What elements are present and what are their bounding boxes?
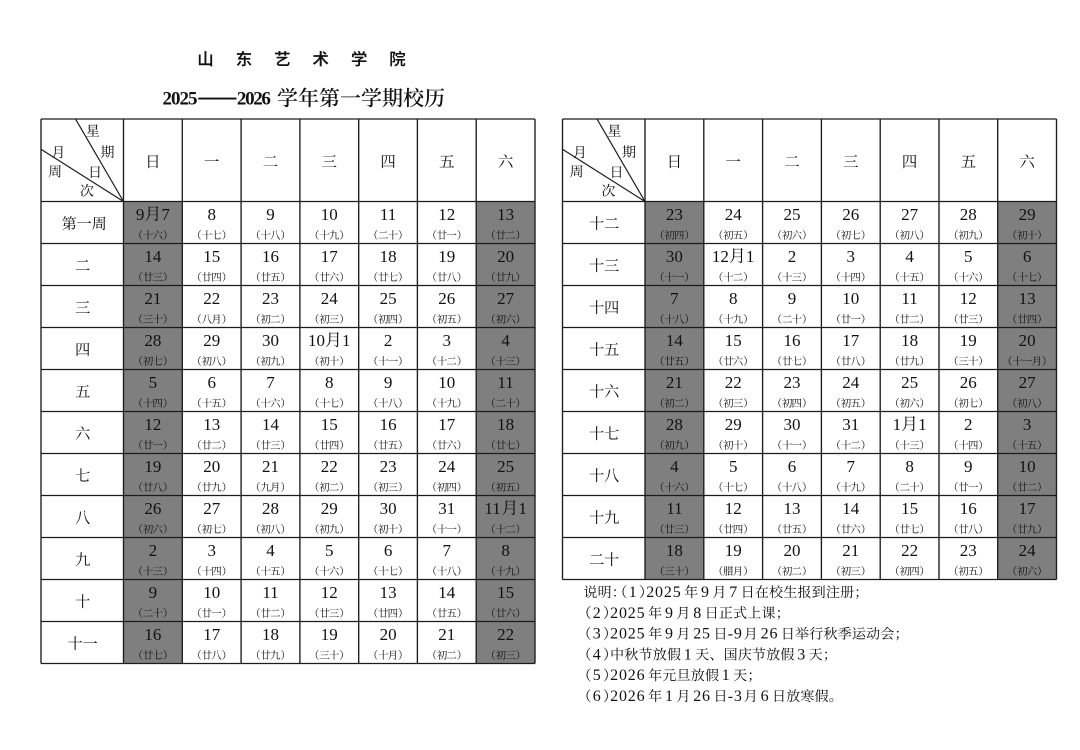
svg-text:8: 8 [501, 541, 510, 560]
svg-text:11: 11 [901, 289, 917, 308]
svg-text:17: 17 [438, 415, 456, 434]
svg-text:23: 23 [960, 541, 977, 560]
svg-text:13: 13 [1019, 289, 1036, 308]
svg-text:18: 18 [497, 415, 514, 434]
svg-text:4: 4 [670, 457, 679, 476]
svg-text:8: 8 [905, 457, 914, 476]
svg-text:12: 12 [725, 499, 742, 518]
svg-text:26: 26 [693, 688, 711, 705]
svg-text:25: 25 [380, 289, 397, 308]
svg-text:12: 12 [960, 289, 977, 308]
svg-text:14: 14 [438, 583, 456, 602]
svg-text:23: 23 [262, 289, 279, 308]
svg-text:21: 21 [262, 457, 279, 476]
svg-text:16: 16 [262, 247, 279, 266]
svg-text:12: 12 [144, 415, 161, 434]
svg-text:1: 1 [746, 247, 755, 266]
svg-text:13: 13 [380, 583, 397, 602]
svg-text:2026: 2026 [610, 688, 645, 705]
svg-text:1: 1 [665, 688, 674, 705]
svg-text:8: 8 [729, 289, 738, 308]
svg-text:15: 15 [901, 499, 918, 518]
svg-text:15: 15 [497, 583, 514, 602]
svg-text:19: 19 [725, 541, 742, 560]
svg-text:15: 15 [725, 331, 742, 350]
svg-text:7: 7 [670, 289, 679, 308]
svg-text:27: 27 [203, 499, 221, 518]
svg-text:5: 5 [964, 247, 973, 266]
svg-text:22: 22 [203, 289, 220, 308]
svg-text:23: 23 [380, 457, 397, 476]
svg-text:10: 10 [1019, 457, 1036, 476]
svg-text:13: 13 [784, 499, 801, 518]
svg-text:9: 9 [136, 205, 145, 224]
svg-text:13: 13 [203, 415, 220, 434]
svg-text:5: 5 [729, 457, 738, 476]
svg-text:22: 22 [321, 457, 338, 476]
svg-text:9: 9 [665, 626, 674, 643]
svg-text:12: 12 [321, 583, 338, 602]
svg-text:23: 23 [666, 205, 683, 224]
svg-text:24: 24 [842, 373, 860, 392]
svg-text:19: 19 [144, 457, 161, 476]
svg-text:3: 3 [847, 247, 856, 266]
svg-text:19: 19 [960, 331, 977, 350]
svg-text:1: 1 [893, 415, 902, 434]
svg-text:1: 1 [518, 499, 527, 518]
svg-text:1: 1 [918, 415, 927, 434]
svg-text:3: 3 [797, 646, 806, 663]
svg-text:3: 3 [1023, 415, 1032, 434]
svg-text:3: 3 [443, 331, 452, 350]
svg-text:28: 28 [960, 205, 977, 224]
svg-text:4: 4 [593, 646, 602, 663]
svg-text:9: 9 [964, 457, 973, 476]
svg-text:9: 9 [665, 605, 674, 622]
svg-text:26: 26 [438, 289, 455, 308]
svg-text:21: 21 [842, 541, 859, 560]
svg-text:28: 28 [262, 499, 279, 518]
svg-text:12: 12 [712, 247, 729, 266]
svg-text:20: 20 [203, 457, 220, 476]
svg-text:29: 29 [203, 331, 220, 350]
svg-text:25: 25 [784, 205, 801, 224]
svg-text:5: 5 [593, 667, 602, 684]
svg-text:16: 16 [144, 625, 161, 644]
svg-text:13: 13 [497, 205, 514, 224]
svg-text:21: 21 [144, 289, 161, 308]
svg-text:28: 28 [144, 331, 161, 350]
svg-text:11: 11 [484, 499, 500, 518]
svg-text:16: 16 [960, 499, 977, 518]
svg-text:4: 4 [501, 331, 510, 350]
svg-text:7: 7 [266, 373, 275, 392]
svg-text:2025: 2025 [610, 605, 645, 622]
svg-text:18: 18 [901, 331, 918, 350]
svg-text:5: 5 [149, 373, 158, 392]
svg-text:29: 29 [321, 499, 338, 518]
svg-text:6: 6 [384, 541, 393, 560]
svg-text:20: 20 [497, 247, 514, 266]
svg-text:1: 1 [684, 646, 693, 663]
svg-text:18: 18 [380, 247, 397, 266]
svg-text:11: 11 [262, 583, 278, 602]
svg-text:14: 14 [144, 247, 162, 266]
svg-text:8: 8 [207, 205, 216, 224]
svg-text:6: 6 [1023, 247, 1032, 266]
svg-text:2026: 2026 [237, 89, 271, 110]
svg-text:2: 2 [593, 605, 602, 622]
svg-text:17: 17 [842, 331, 860, 350]
svg-text:16: 16 [380, 415, 397, 434]
svg-text:10: 10 [321, 205, 338, 224]
svg-text:10: 10 [842, 289, 859, 308]
svg-text:12: 12 [438, 205, 455, 224]
svg-text:17: 17 [321, 247, 339, 266]
svg-text:24: 24 [321, 289, 339, 308]
svg-text:17: 17 [203, 625, 221, 644]
svg-text:1: 1 [722, 667, 731, 684]
svg-text:10: 10 [438, 373, 455, 392]
svg-text:2: 2 [964, 415, 973, 434]
svg-text:1: 1 [629, 584, 638, 601]
svg-text:22: 22 [901, 541, 918, 560]
svg-text:15: 15 [321, 415, 338, 434]
svg-text:21: 21 [666, 373, 683, 392]
svg-text:29: 29 [1019, 205, 1036, 224]
svg-text:2: 2 [384, 331, 393, 350]
svg-text:20: 20 [784, 541, 801, 560]
svg-text:26: 26 [842, 205, 859, 224]
svg-text:-9: -9 [728, 626, 743, 643]
svg-text:2: 2 [149, 541, 158, 560]
svg-text:2025: 2025 [646, 584, 681, 601]
svg-text:3: 3 [207, 541, 216, 560]
svg-text:8: 8 [325, 373, 334, 392]
svg-text:17: 17 [1019, 499, 1037, 518]
svg-text:5: 5 [325, 541, 334, 560]
svg-text:2026: 2026 [610, 667, 645, 684]
svg-text:18: 18 [262, 625, 279, 644]
svg-text:21: 21 [438, 625, 455, 644]
svg-text:31: 31 [842, 415, 859, 434]
svg-text:7: 7 [729, 584, 738, 601]
svg-text:23: 23 [784, 373, 801, 392]
svg-text:6: 6 [207, 373, 216, 392]
svg-text:15: 15 [203, 247, 220, 266]
svg-text:16: 16 [784, 331, 801, 350]
svg-text:25: 25 [901, 373, 918, 392]
svg-text:10: 10 [308, 331, 325, 350]
svg-text:24: 24 [1019, 541, 1037, 560]
svg-text:9: 9 [788, 289, 797, 308]
svg-text:28: 28 [666, 415, 683, 434]
svg-text:4: 4 [905, 247, 914, 266]
svg-text:20: 20 [1019, 331, 1036, 350]
svg-text:14: 14 [262, 415, 280, 434]
svg-text:30: 30 [666, 247, 683, 266]
svg-text:30: 30 [784, 415, 801, 434]
svg-text:9: 9 [701, 584, 710, 601]
svg-text:24: 24 [438, 457, 456, 476]
svg-text:14: 14 [842, 499, 860, 518]
svg-text:19: 19 [438, 247, 455, 266]
svg-text:22: 22 [497, 625, 514, 644]
svg-text:11: 11 [380, 205, 396, 224]
svg-text:4: 4 [266, 541, 275, 560]
svg-text:18: 18 [666, 541, 683, 560]
svg-text:27: 27 [497, 289, 515, 308]
svg-text:9: 9 [384, 373, 393, 392]
svg-text:7: 7 [443, 541, 452, 560]
svg-text:26: 26 [960, 373, 977, 392]
svg-text:19: 19 [321, 625, 338, 644]
svg-text:6: 6 [593, 688, 602, 705]
svg-text:22: 22 [725, 373, 742, 392]
svg-text:9: 9 [149, 583, 158, 602]
svg-text:27: 27 [1019, 373, 1037, 392]
svg-text:27: 27 [901, 205, 919, 224]
svg-text:10: 10 [203, 583, 220, 602]
svg-text:8: 8 [693, 605, 702, 622]
svg-text:9: 9 [266, 205, 275, 224]
svg-text:24: 24 [725, 205, 743, 224]
svg-text:25: 25 [497, 457, 514, 476]
svg-text:3: 3 [593, 626, 602, 643]
svg-text:2: 2 [788, 247, 797, 266]
svg-text:7: 7 [847, 457, 856, 476]
svg-text:11: 11 [497, 373, 513, 392]
svg-text:6: 6 [788, 457, 797, 476]
svg-text:30: 30 [380, 499, 397, 518]
svg-text:30: 30 [262, 331, 279, 350]
svg-text:2025: 2025 [610, 626, 645, 643]
svg-text:1: 1 [342, 331, 351, 350]
svg-text:11: 11 [666, 499, 682, 518]
svg-text:2025: 2025 [163, 89, 198, 110]
svg-text:20: 20 [380, 625, 397, 644]
svg-text:25: 25 [693, 626, 711, 643]
svg-text:6: 6 [761, 688, 770, 705]
svg-text:-3: -3 [728, 688, 743, 705]
svg-text:26: 26 [144, 499, 161, 518]
svg-text:26: 26 [761, 626, 779, 643]
svg-text:31: 31 [438, 499, 455, 518]
svg-text:29: 29 [725, 415, 742, 434]
svg-text:14: 14 [666, 331, 684, 350]
svg-text:7: 7 [161, 205, 170, 224]
